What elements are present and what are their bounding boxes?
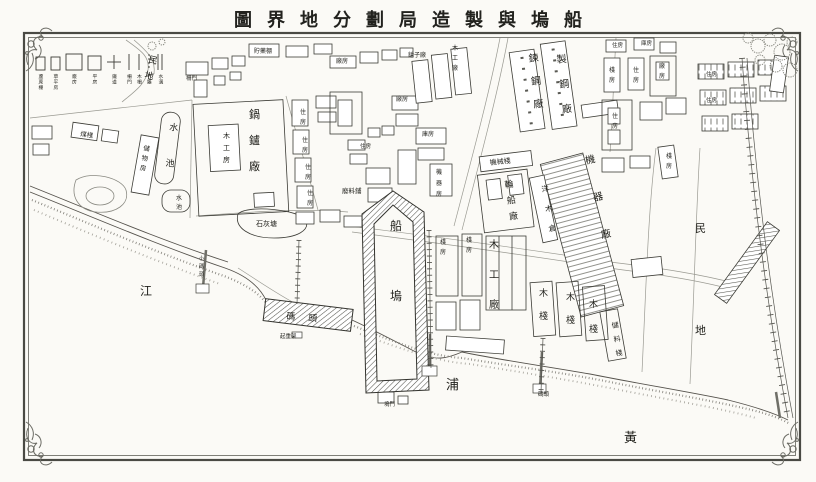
map-label: 木棧 [566,291,575,326]
map-label: 廢料鋪 [342,186,362,195]
map-label: 木工廠 [489,239,499,311]
legend-symbol [158,54,162,70]
map-label: 貯藥棚 [254,47,272,55]
legend-symbol [36,57,45,70]
legend-label: 水溝 [159,73,164,85]
map-label: 庫房 [422,130,434,138]
map-label: 水池 [176,194,182,211]
map-label: 塢門 [384,400,396,408]
map-label: 鍋鑪廠 [249,107,260,173]
corner-ornaments [26,28,799,465]
map-label: 木棧 [589,298,598,335]
legend-symbol [88,56,101,70]
map-label: 木棧 [539,287,548,322]
map-label: 儲料棧 [611,320,623,358]
legend-label: 蘆蓆棚 [39,73,44,91]
map-label: 船塢 [390,219,402,303]
map-label: 機器房 [436,168,442,198]
map-label: 住房 [360,142,372,150]
map-label: 廠房 [336,57,348,65]
legend-label: 平房 [93,74,98,85]
map-sheet: 圖界地分劃局造製與塢船 [0,0,816,482]
map-label: 煤棧 [80,129,95,140]
map-label: 柵門 [186,74,198,82]
map-canvas: 蘆蓆棚草平房廠房平房鐵道柵門木柵竹籬水溝 民地水池鍋鑪廠木工房儲物房煤棧水池石灰… [0,0,816,482]
map-label: 水池 [165,121,179,170]
map-label: 庫房 [641,39,653,47]
map-label: 民地 [695,222,706,337]
map-label: 鎗子廠 [408,51,426,59]
map-label: 碼頭 [538,391,550,398]
map-label: 棧房 [466,236,472,254]
legend-symbol [66,54,82,70]
map-label: 黃 [624,431,637,446]
legend-symbol [107,55,121,69]
map-label: 石灰塘 [256,219,277,228]
legend-label: 草平房 [54,73,59,91]
map-label: 住房 [706,96,718,104]
map-label: 廠房 [396,95,408,103]
map-label: 住房 [706,70,718,78]
legend-symbol [51,57,60,70]
legend-label: 木柵 [137,73,142,85]
map-label: 起重架 [280,332,297,340]
legend-label: 廠房 [72,73,77,85]
map-label: 木工廠 [452,44,458,72]
map-label: 木工房 [223,131,230,164]
legend-label: 柵門 [127,73,132,85]
map-label: 住房 [612,41,624,49]
legend: 蘆蓆棚草平房廠房平房鐵道柵門木柵竹籬水溝 [36,54,164,91]
map-label: 江 [140,284,152,298]
map-label: 浦 [446,378,459,393]
map-label: 民地 [143,54,158,82]
map-label: 小碼頭 [199,255,204,278]
legend-label: 鐵道 [112,73,117,85]
map-label: 棧房 [440,238,446,256]
